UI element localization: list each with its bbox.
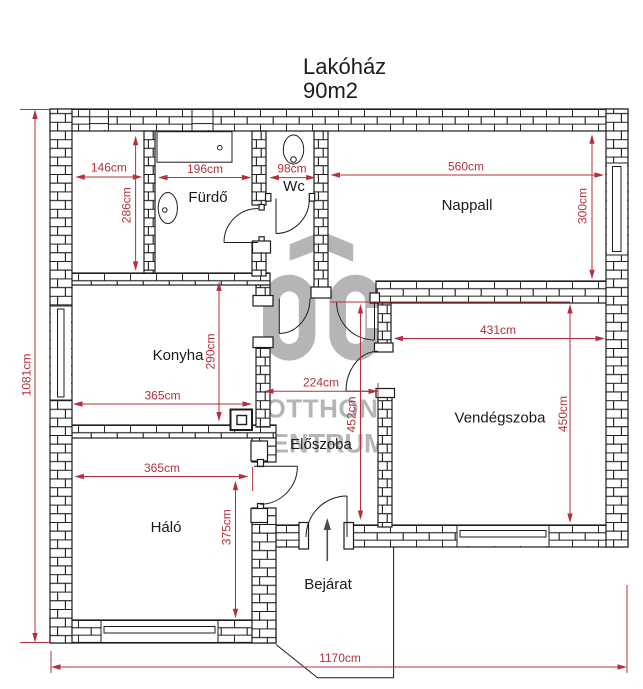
svg-text:Háló: Háló [151, 519, 182, 536]
svg-text:365cm: 365cm [144, 461, 180, 475]
svg-text:90m2: 90m2 [303, 78, 358, 103]
svg-text:1170cm: 1170cm [319, 651, 361, 665]
svg-text:290cm: 290cm [204, 333, 218, 369]
svg-text:Vendégszoba: Vendégszoba [455, 410, 547, 427]
svg-text:98cm: 98cm [277, 162, 306, 176]
svg-text:Bejárat: Bejárat [304, 576, 352, 593]
svg-text:286cm: 286cm [120, 187, 134, 223]
svg-text:146cm: 146cm [91, 161, 127, 175]
svg-text:375cm: 375cm [220, 509, 234, 545]
svg-text:452cm: 452cm [345, 396, 359, 432]
svg-text:450cm: 450cm [556, 396, 570, 432]
svg-text:196cm: 196cm [187, 162, 223, 176]
svg-text:OTTHON: OTTHON [266, 394, 379, 424]
svg-text:Wc: Wc [283, 178, 305, 195]
svg-text:365cm: 365cm [144, 389, 180, 403]
svg-text:431cm: 431cm [480, 323, 516, 337]
svg-text:1081cm: 1081cm [20, 354, 34, 397]
svg-text:Nappall: Nappall [442, 197, 493, 214]
svg-text:Lakóház: Lakóház [303, 54, 386, 79]
svg-text:Fürdő: Fürdő [188, 189, 227, 206]
svg-text:224cm: 224cm [303, 376, 339, 390]
svg-text:300cm: 300cm [576, 188, 590, 224]
svg-text:560cm: 560cm [448, 160, 484, 174]
svg-text:Előszoba: Előszoba [290, 436, 352, 453]
svg-text:Konyha: Konyha [153, 347, 205, 364]
